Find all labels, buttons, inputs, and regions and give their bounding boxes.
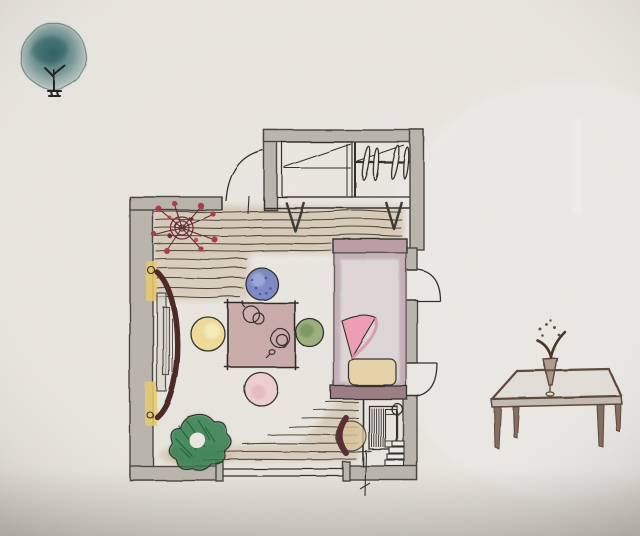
cushion-blue xyxy=(246,268,278,300)
bed xyxy=(331,239,407,399)
wall-bottom-right xyxy=(346,466,417,480)
cushion-pink xyxy=(245,373,278,406)
closet-wall-top xyxy=(264,130,424,142)
closet-wall-right xyxy=(410,130,424,250)
window-post-right xyxy=(343,462,350,481)
window-post-left xyxy=(216,462,223,481)
cushion-green xyxy=(296,319,324,347)
bed-headboard xyxy=(333,239,407,253)
floor-plan-drawing xyxy=(0,0,640,536)
wall-left xyxy=(130,197,153,480)
sketch-page xyxy=(0,0,640,536)
low-table xyxy=(225,300,298,370)
cushion-yellow xyxy=(191,317,225,351)
plant-center xyxy=(189,432,205,448)
bed-pillow xyxy=(349,359,396,385)
bed-footboard xyxy=(331,386,407,399)
